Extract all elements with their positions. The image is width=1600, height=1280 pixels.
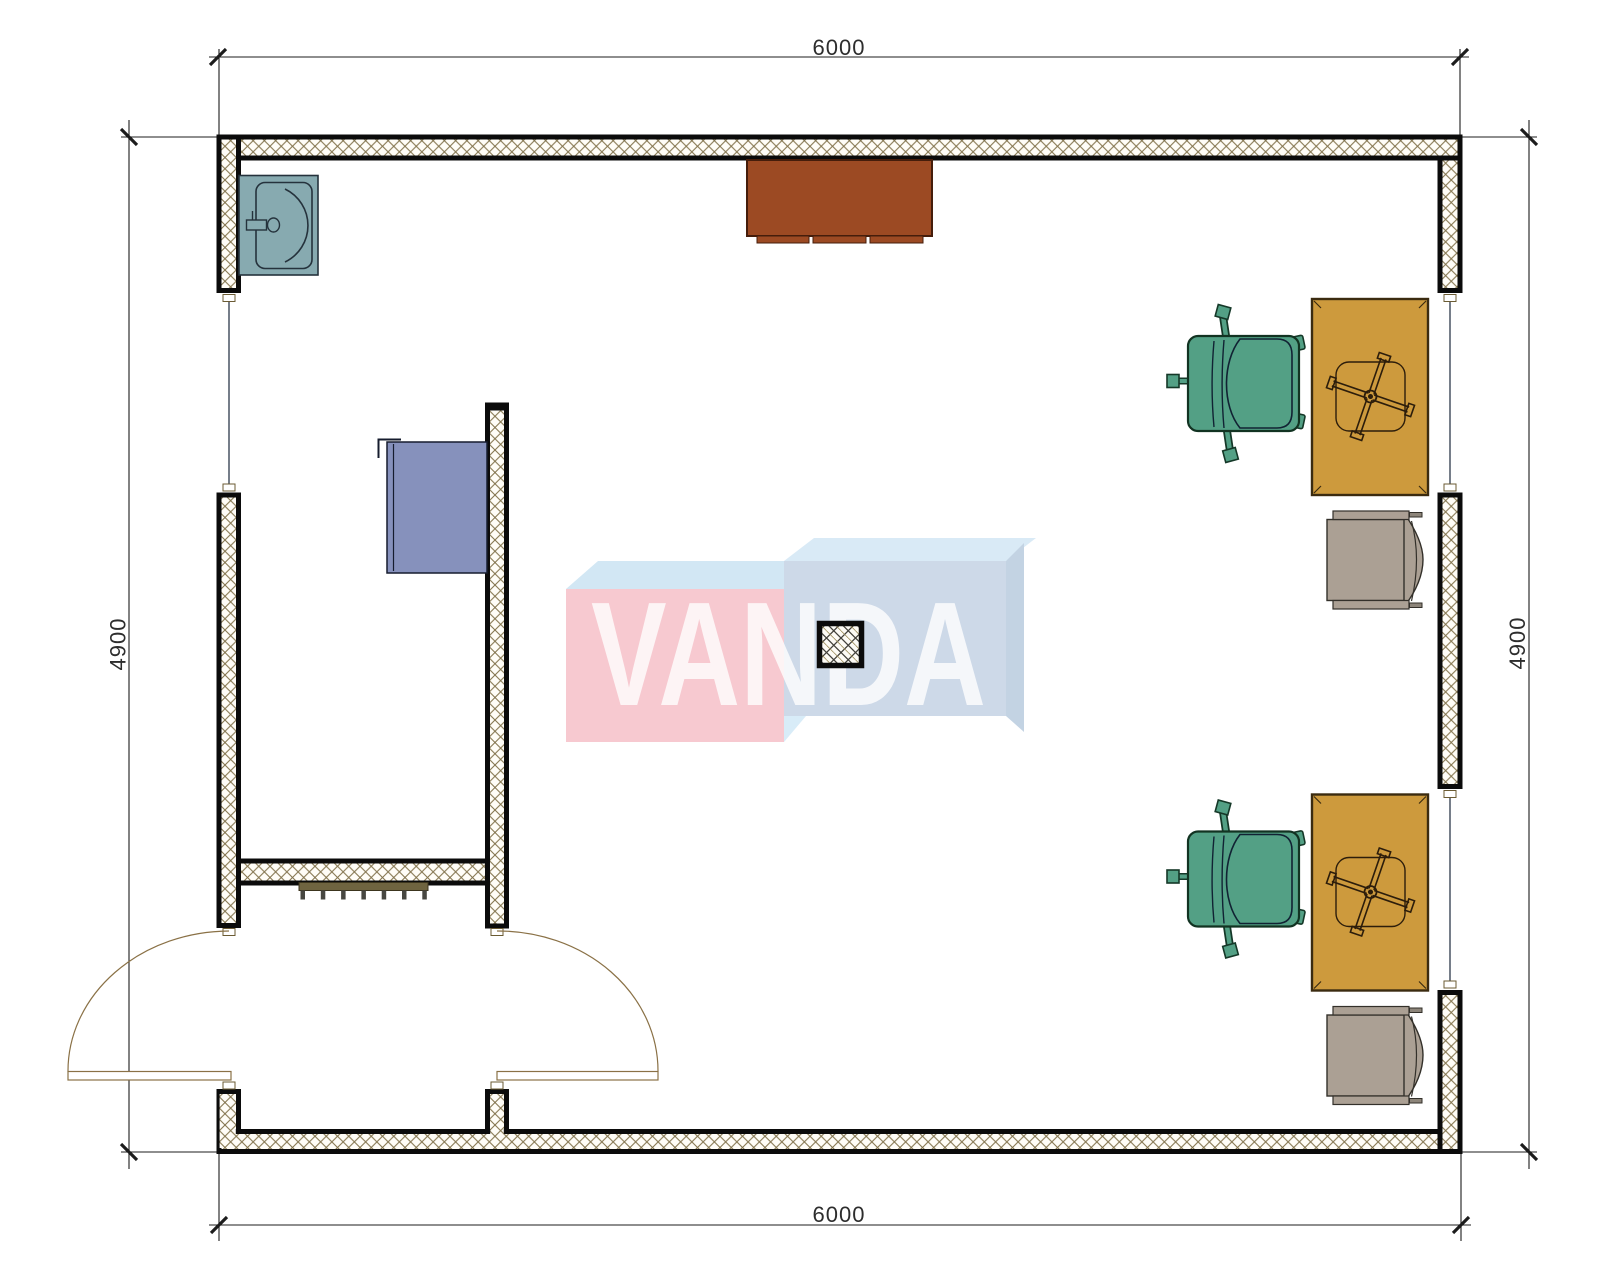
svg-text:VANDA: VANDA [591,572,986,737]
svg-text:4900: 4900 [106,618,131,671]
svg-text:4900: 4900 [1505,617,1530,670]
svg-text:6000: 6000 [813,1202,866,1227]
svg-text:6000: 6000 [813,35,866,60]
